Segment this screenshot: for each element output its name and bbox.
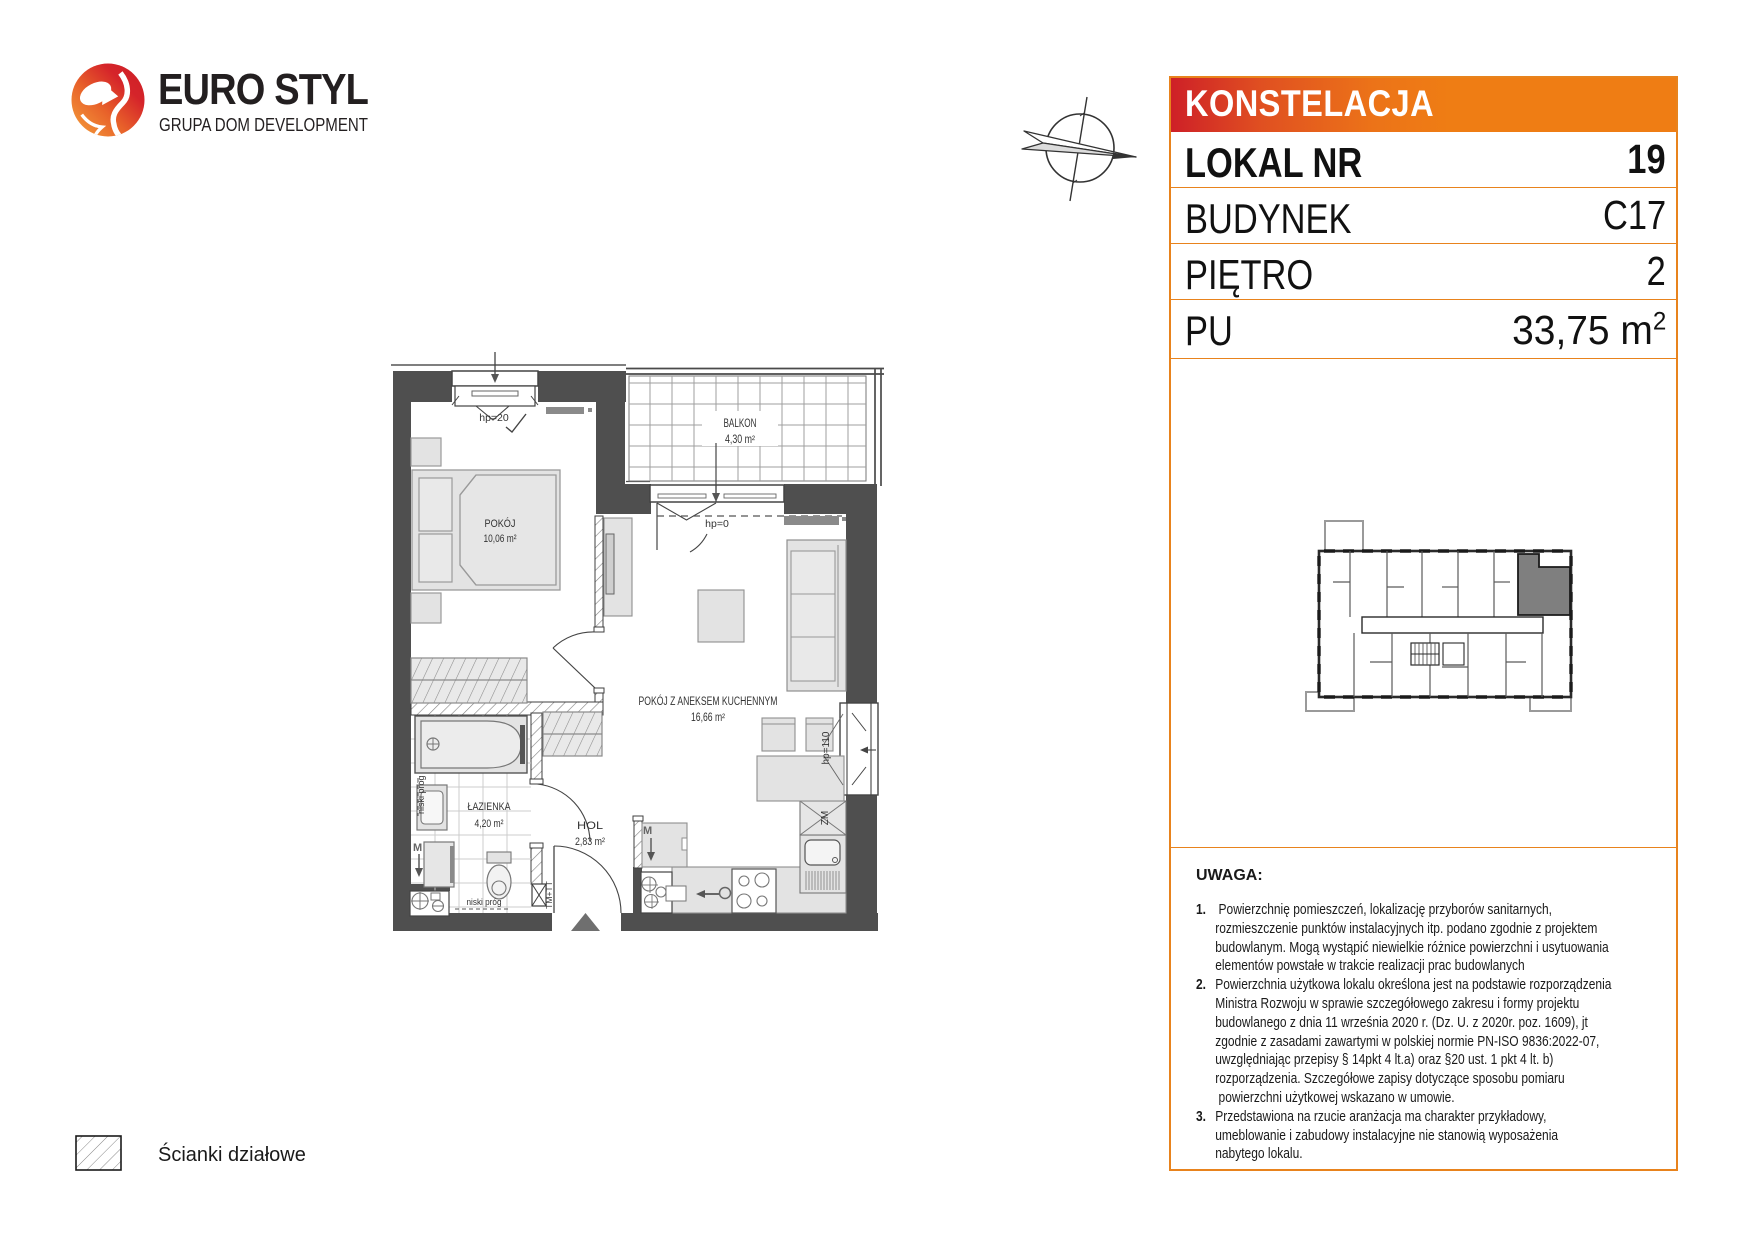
svg-text:10,06 m²: 10,06 m² xyxy=(484,533,517,545)
svg-text:HOL: HOL xyxy=(577,820,603,832)
svg-text:M: M xyxy=(413,842,422,854)
svg-text:POKÓJ Z ANEKSEM KUCHENNYM: POKÓJ Z ANEKSEM KUCHENNYM xyxy=(639,695,778,708)
svg-text:16,66 m²: 16,66 m² xyxy=(691,712,725,724)
svg-text:4,20 m²: 4,20 m² xyxy=(475,818,504,830)
svg-text:2,83 m²: 2,83 m² xyxy=(575,836,605,848)
svg-text:Ścianki działowe: Ścianki działowe xyxy=(158,1142,306,1166)
svg-text:hp=110: hp=110 xyxy=(821,731,832,764)
svg-text:niski próg: niski próg xyxy=(467,897,502,908)
svg-text:hp=0: hp=0 xyxy=(705,518,729,530)
svg-text:POKÓJ: POKÓJ xyxy=(485,517,516,530)
svg-text:ZM: ZM xyxy=(820,811,831,825)
svg-text:TM+TT: TM+TT xyxy=(544,881,554,909)
svg-text:hp=20: hp=20 xyxy=(479,412,509,424)
svg-text:BALKON: BALKON xyxy=(724,418,757,430)
svg-text:ŁAZIENKA: ŁAZIENKA xyxy=(468,801,512,813)
svg-text:4,30 m²: 4,30 m² xyxy=(725,434,755,446)
svg-text:M: M xyxy=(643,825,652,837)
